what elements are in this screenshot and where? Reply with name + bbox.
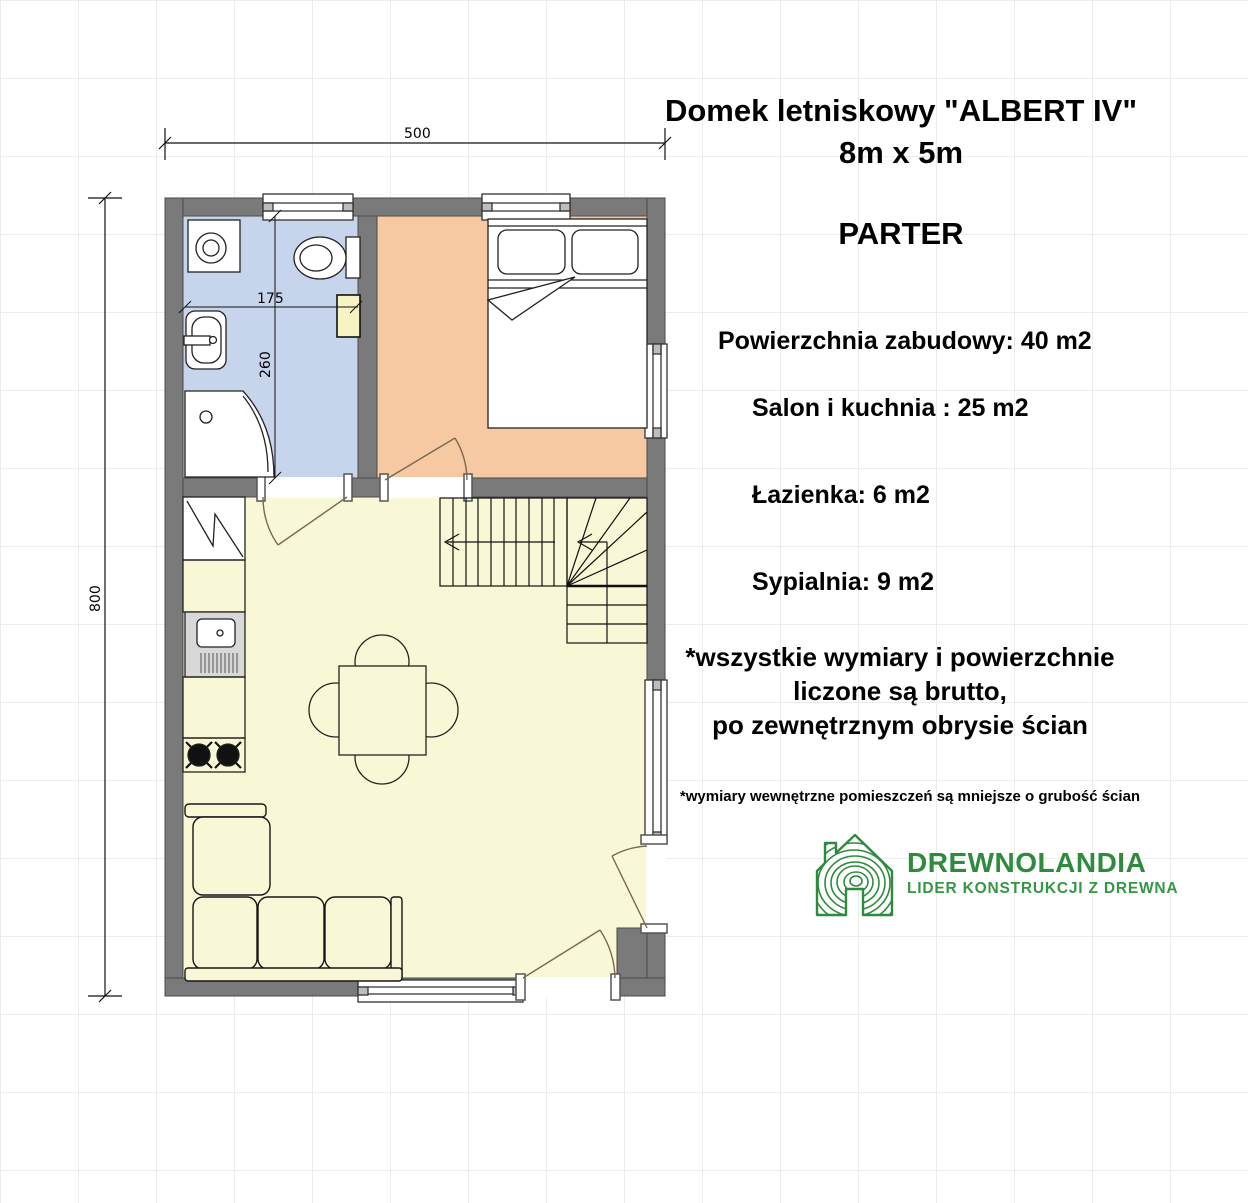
window-bathroom-top: [263, 194, 353, 220]
logo-tagline: LIDER KONSTRUKCJI Z DREWNA: [907, 880, 1207, 898]
window-bedroom-top: [482, 194, 570, 220]
logo-house-woodgrain-icon: [810, 831, 900, 921]
logo-brand-name: DREWNOLANDIA: [907, 847, 1207, 879]
dim-width: 500: [159, 126, 671, 160]
kitchen-tall-cabinet: [183, 497, 245, 560]
sofa-cushion: [325, 897, 391, 969]
sofa-cushion: [193, 897, 257, 969]
floor-plan: 175 260: [0, 0, 1248, 1203]
table: [339, 666, 426, 755]
toilet: [294, 237, 360, 279]
title-line2: 8m x 5m: [616, 132, 1186, 174]
title-line1: Domek letniskowy "ALBERT IV": [616, 90, 1186, 132]
washbasin: [184, 311, 226, 369]
bathroom-cabinet: [337, 295, 360, 337]
pillow: [498, 230, 565, 274]
sofa-cushion: [258, 897, 324, 969]
sofa-cushion: [193, 817, 270, 895]
burner: [217, 744, 239, 766]
dim-bathroom-width: 175: [257, 291, 284, 307]
area-living-kitchen: Salon i kuchnia : 25 m2: [752, 394, 1028, 423]
burner: [188, 744, 210, 766]
dim-height: 800: [88, 192, 122, 1002]
note-gross: *wszystkie wymiary i powierzchnie liczon…: [645, 640, 1155, 742]
dim-height-label: 800: [88, 585, 104, 612]
washing-machine: [188, 220, 240, 272]
area-bathroom: Łazienka: 6 m2: [752, 481, 930, 510]
wall-bath-bedroom: [358, 216, 377, 478]
window-bedroom-right: [645, 344, 667, 438]
kitchen-sink: [185, 612, 245, 677]
dim-bathroom-height: 260: [258, 351, 274, 378]
note-internal: *wymiary wewnętrzne pomieszczeń są mniej…: [655, 788, 1165, 805]
sofa-back: [185, 968, 402, 981]
window-living-bottom: [358, 980, 523, 1002]
area-bedroom: Sypialnia: 9 m2: [752, 568, 934, 597]
dim-width-label: 500: [404, 126, 431, 142]
area-total: Powierzchnia zabudowy: 40 m2: [718, 327, 1092, 356]
sofa-armrest: [185, 804, 266, 817]
wall-corner-pier: [617, 928, 647, 978]
page-title: Domek letniskowy "ALBERT IV" 8m x 5m: [616, 90, 1186, 174]
floor-label: PARTER: [616, 216, 1186, 252]
